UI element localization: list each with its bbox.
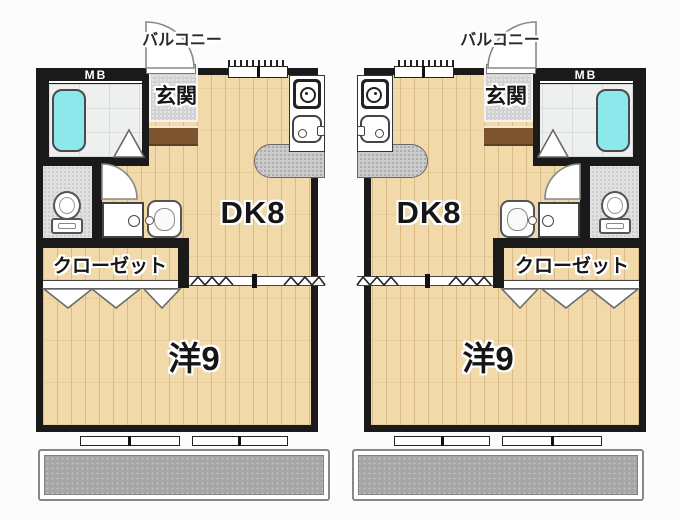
kitchen-window bbox=[394, 66, 454, 78]
window-mullion bbox=[128, 436, 131, 446]
toilet-icon bbox=[601, 191, 629, 220]
washer-drain bbox=[542, 215, 554, 227]
entrance-label: 玄関 bbox=[136, 82, 216, 108]
sink-faucet bbox=[357, 126, 365, 136]
bathtub-icon bbox=[596, 89, 630, 152]
bathtub-icon bbox=[52, 89, 86, 152]
stove-burner bbox=[366, 87, 382, 103]
unit-left: MB bbox=[36, 12, 332, 512]
balcony bbox=[352, 449, 644, 501]
window-mullion bbox=[551, 436, 554, 446]
meter-box-label: MB bbox=[533, 67, 639, 83]
closet-wall-top bbox=[36, 238, 189, 248]
window-mullion bbox=[257, 66, 260, 78]
window-mullion bbox=[422, 66, 425, 78]
sink-faucet bbox=[317, 126, 325, 136]
washer-drain bbox=[128, 215, 140, 227]
room-divider-post bbox=[425, 274, 430, 288]
stove-icon bbox=[293, 79, 321, 109]
stove-burner-center bbox=[374, 92, 377, 95]
entrance-threshold bbox=[146, 64, 196, 74]
balcony-floor bbox=[358, 455, 638, 495]
entrance-step bbox=[484, 126, 533, 146]
meter-box-label: MB bbox=[43, 67, 149, 83]
closet-door-track bbox=[504, 280, 639, 289]
kitchen-sink-icon bbox=[360, 115, 390, 143]
closet-label: クローゼット bbox=[502, 249, 642, 279]
stove-burner-center bbox=[305, 92, 308, 95]
washbasin-icon bbox=[147, 200, 182, 238]
sink-drain bbox=[375, 129, 384, 138]
washing-machine-pan-icon bbox=[538, 202, 580, 238]
window-mullion bbox=[441, 436, 444, 446]
entrance-threshold bbox=[486, 64, 536, 74]
room-divider-post bbox=[252, 274, 257, 288]
stove-icon bbox=[361, 79, 389, 109]
western-room-label: 洋9 bbox=[134, 336, 254, 376]
washbasin-icon bbox=[500, 200, 535, 238]
room-divider-track bbox=[189, 276, 325, 286]
toilet-tank bbox=[51, 218, 83, 234]
washbasin-bowl bbox=[154, 208, 175, 231]
toilet-room-wall bbox=[580, 166, 590, 240]
washbasin-faucet bbox=[528, 216, 537, 225]
dining-kitchen-label: DK8 bbox=[359, 194, 499, 232]
western-room-label: 洋9 bbox=[428, 336, 548, 376]
closet-label: クローゼット bbox=[40, 249, 180, 279]
balcony-label: バルコニー bbox=[36, 26, 328, 50]
closet-wall-top bbox=[493, 238, 646, 248]
window-mullion bbox=[238, 436, 241, 446]
balcony-window-right bbox=[394, 436, 490, 446]
balcony-window-right bbox=[192, 436, 288, 446]
toilet-seat bbox=[59, 197, 75, 214]
balcony-floor bbox=[44, 455, 324, 495]
washbasin-faucet bbox=[145, 216, 154, 225]
toilet-tank-lid bbox=[58, 223, 76, 229]
floorplan-canvas: MB bbox=[0, 0, 680, 520]
toilet-tank bbox=[599, 218, 631, 234]
balcony-window-left bbox=[502, 436, 602, 446]
entrance-step bbox=[149, 126, 198, 146]
sink-drain bbox=[298, 129, 307, 138]
balcony bbox=[38, 449, 330, 501]
kitchen-window bbox=[228, 66, 288, 78]
toilet-room-wall bbox=[92, 166, 102, 240]
unit-right: MB bbox=[350, 12, 646, 512]
toilet-icon bbox=[53, 191, 81, 220]
balcony-label: バルコニー bbox=[354, 26, 646, 50]
stove-burner bbox=[300, 87, 316, 103]
balcony-window-left bbox=[80, 436, 180, 446]
closet-door-track bbox=[43, 280, 178, 289]
dining-kitchen-label: DK8 bbox=[183, 194, 323, 232]
washing-machine-pan-icon bbox=[102, 202, 144, 238]
entrance-label: 玄関 bbox=[466, 82, 546, 108]
toilet-seat bbox=[607, 197, 623, 214]
toilet-tank-lid bbox=[606, 223, 624, 229]
washbasin-bowl bbox=[507, 208, 528, 231]
kitchen-sink-icon bbox=[292, 115, 322, 143]
